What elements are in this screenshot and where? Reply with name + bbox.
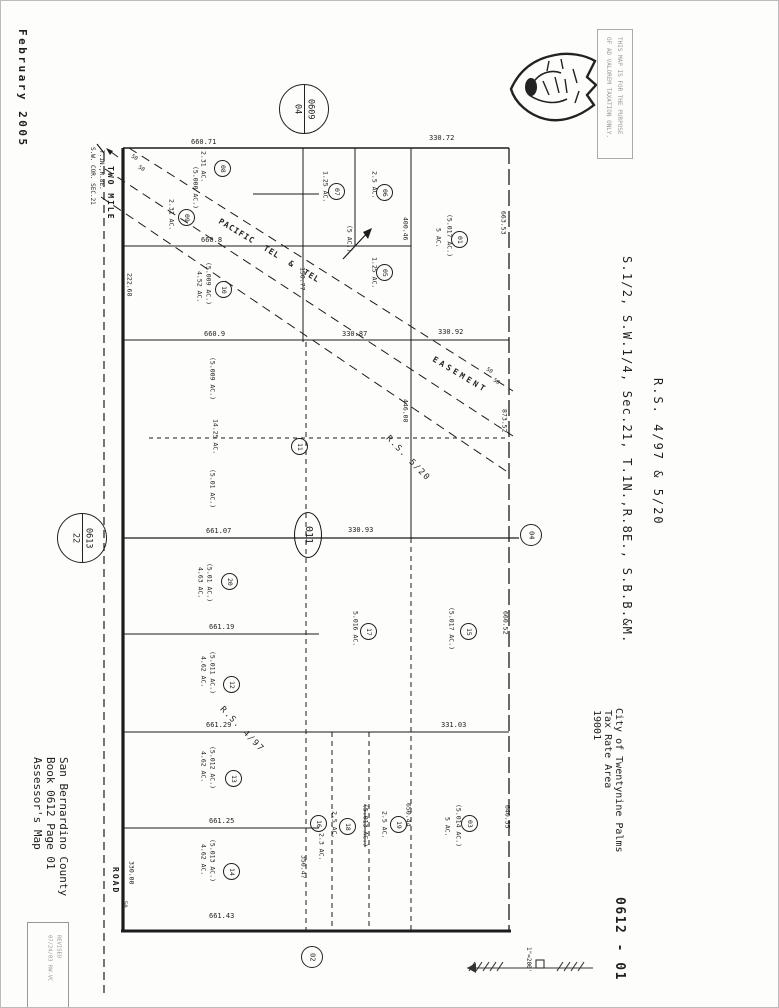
date-stamp: February 2005 [17,29,28,148]
map-text: 660.8 [201,237,222,244]
parcel-number: 14 [228,868,235,876]
map-text: (5 AC.) [346,225,353,252]
parcel-number-circle: 11 [291,438,308,455]
map-text: 661.07 [206,528,231,535]
ref-circle-text: 0609 [304,85,317,133]
disclaimer-line: OF AD VALOREM TAXATION ONLY. [605,37,611,138]
assessor-map-label: Assessor's Map [32,757,43,850]
map-text: 2.31 AC. [168,199,175,230]
parcel-number: 13 [230,775,237,783]
tax-area-city: City of Twentynine Palms [613,708,623,853]
parcel-number: 17 [365,628,372,636]
record-survey-refs: R.S. 4/97 & 5/20 [652,378,664,526]
map-text: 663.53 [500,211,507,234]
parcel-number: 09 [183,214,190,222]
ref-circle-text: 04 [292,85,304,133]
parcel-number: 03 [466,820,473,828]
map-text: 4.62 AC. [200,656,207,687]
sw-corner-township-label: T.1N.,R.8E. [98,150,104,190]
map-text: 50 [121,901,127,908]
parcel-number-circle: 18 [339,818,356,835]
map-text: (5.013 AC.) [362,804,369,847]
parcel-number-circle: 03 [461,815,478,832]
ref-circle-page-04: 04 [520,524,542,546]
map-text: 5 AC. [444,817,451,837]
map-text: (5.000 AC.) [192,166,199,209]
tax-area-code: 19001 [591,710,601,740]
map-text: (5.01 AC.) [209,469,216,508]
road-name-two-mile: TWO MILE [106,166,114,221]
map-text: 661.25 [209,818,234,825]
map-text: 660.71 [191,139,216,146]
ref-circle-book-0609-page-04: 060904 [279,84,329,134]
parcel-number-circle: 19 [390,816,407,833]
center-marker-label: 011 [303,526,313,544]
map-text: (5.011 AC.) [209,651,216,694]
map-text: 1.25 AC. [322,171,329,202]
parcel-number-circle: 12 [223,676,240,693]
map-text: 4.52 AC. [196,271,203,302]
map-text: 446.08 [402,399,409,422]
parcel-number: 06 [381,189,388,197]
easement-corridor-lines [101,148,513,471]
map-text: 222.68 [126,273,133,296]
map-text: 14.25 AC. [212,419,219,454]
map-text: 4.62 AC. [200,844,207,875]
road-name-road: ROAD [111,867,119,894]
map-text: 350.47 [300,855,307,878]
parcel-number: 18 [344,823,351,831]
disclaimer-line: THIS MAP IS FOR THE PURPOSE [616,37,622,135]
map-text: 2.31 AC. [200,151,207,182]
parcel-number: 08 [219,165,226,173]
parcel-number-circle: 01 [451,231,468,248]
parcel-number-circle: 14 [223,863,240,880]
map-text: 660.52 [502,611,509,634]
map-text: (5.012 AC.) [209,746,216,789]
disclaimer-box: THIS MAP IS FOR THE PURPOSE OF AD VALORE… [597,29,633,159]
parcel-number-circle: 10 [215,281,232,298]
center-quarter-marker: 011 [294,512,322,558]
ref-circle-text: 04 [528,531,535,539]
map-text: 2.5 AC. [381,811,388,838]
map-text: (5.017 AC.) [448,607,455,650]
map-text: 330.93 [348,527,373,534]
map-text: 4.63 AC. [197,567,204,598]
parcel-number-circle: 15 [460,623,477,640]
map-text: 660.9 [204,331,225,338]
parcel-number: 20 [226,578,233,586]
parcel-number-circle: 07 [328,183,345,200]
map-text: 330.92 [438,329,463,336]
parcel-number-circle: 09 [178,209,195,226]
map-text: 330.72 [429,135,454,142]
map-text: 640.55 [504,805,511,828]
revised-label: REVISED [55,935,61,958]
scale-label: 1"=200' [525,947,531,972]
parcel-number: 19 [395,821,402,829]
parcel-number: 11 [296,443,303,451]
map-text: 661.43 [209,913,234,920]
parcel-number: 12 [228,681,235,689]
ref-circle-text: 0613 [82,514,95,562]
parcel-number-circle: 16 [310,815,327,832]
map-text: 400.46 [402,217,409,240]
parcel-number: 01 [456,236,463,244]
parcel-number-circle: 08 [214,160,231,177]
ref-circle-page-02: 02 [301,946,323,968]
map-text: 330.87 [342,331,367,338]
assessor-book-page-label: Book 0612 Page 01 [45,757,56,870]
parcel-number: 16 [315,820,322,828]
map-text: 5.016 AC. [352,611,359,646]
revised-date: 07/24/03 RW-VC [46,935,52,981]
parcel-number: 15 [465,628,472,636]
map-text: 4.62 AC. [200,751,207,782]
revision-box: REVISED 07/24/03 RW-VC [27,922,69,1008]
parcel-number-circle: 20 [221,573,238,590]
map-text: 661.29 [206,722,231,729]
tax-area-label: Tax Rate Area [602,710,612,788]
map-text: 5 AC. [435,228,442,248]
assessor-county-label: San Bernardino County [58,757,69,896]
county-arrowhead-seal-icon [511,54,596,120]
parcel-number: 10 [220,286,227,294]
map-text: 873.52 [501,409,508,432]
sw-corner-label: S.W. COR. SEC.21 [89,147,95,205]
map-text: 331.03 [441,722,466,729]
assessor-map-page: 660.71330.72660.8660.9330.87330.92661.07… [0,0,779,1008]
parcel-number-circle: 17 [360,623,377,640]
map-text: 2.3 AC. [318,833,325,860]
parcel-number-circle: 05 [376,264,393,281]
map-text: (5.013 AC.) [209,839,216,882]
map-text: (5.01 AC.) [206,563,213,602]
ref-circle-book-0613-page-22: 061322 [57,513,107,563]
map-book-page-number: 0612 - 01 [613,897,626,981]
section-title: S.1/2, S.W.1/4, Sec.21, T.1N.,R.8E., S.B… [621,256,633,644]
parcel-number: 05 [381,269,388,277]
map-text: 661.19 [209,624,234,631]
map-text: (5.009 AC.) [209,357,216,400]
map-text: 2.5 AC. [331,811,338,838]
parcel-number: 07 [333,188,340,196]
parcel-number-circle: 13 [225,770,242,787]
ref-circle-text: 22 [70,514,82,562]
map-text: (5.009 AC.) [205,262,212,305]
parcel-number-circle: 06 [376,184,393,201]
ref-circle-text: 02 [309,953,316,961]
map-text: 330.00 [128,861,135,884]
